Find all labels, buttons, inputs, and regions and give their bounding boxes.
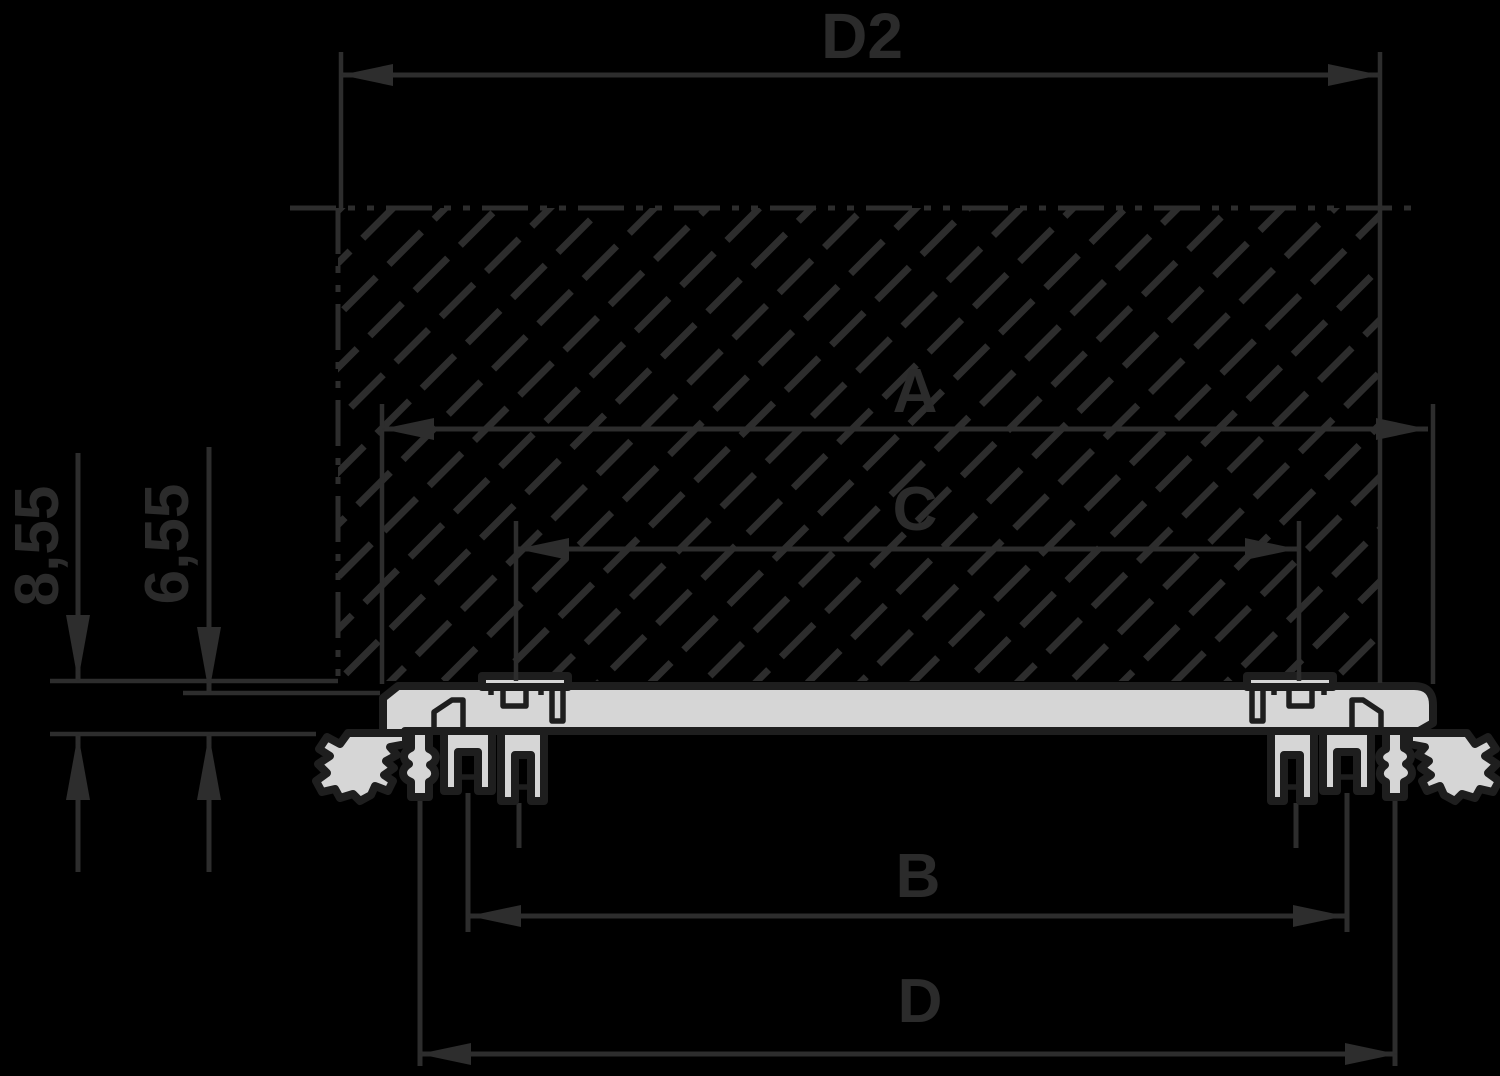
technical-drawing-canvas: D2ACBD 8,556,55 (0, 0, 1500, 1076)
arrowhead-down (66, 615, 90, 681)
dimension-drawing-svg: D2ACBD 8,556,55 (0, 0, 1500, 1076)
gasket-bump (403, 731, 436, 797)
dimension-label: 8,55 (3, 486, 72, 607)
arrowhead-right (1293, 905, 1345, 927)
dimension-B: B (469, 842, 1345, 927)
arrowhead-right (1345, 1043, 1397, 1065)
arrowhead-left (469, 905, 521, 927)
emc-gasket-comb (316, 733, 406, 801)
dimension-6,55: 6,55 (133, 447, 221, 872)
screw-boss (482, 676, 568, 687)
dimension-label: A (893, 357, 938, 426)
arrowhead-right (1376, 418, 1428, 440)
arrowhead-left (341, 64, 393, 86)
arrowhead-up (197, 734, 221, 800)
arrowhead-right (1328, 64, 1380, 86)
dimension-D: D (419, 967, 1397, 1065)
hatched-board-area (338, 208, 1380, 681)
hatch-fill (338, 208, 1380, 681)
vertical-dimensions: 8,556,55 (3, 447, 221, 872)
dimension-label: C (893, 475, 938, 544)
dimension-label: D2 (821, 0, 903, 72)
dimension-8,55: 8,55 (3, 453, 90, 872)
dimension-label: 6,55 (133, 484, 202, 605)
reference-lines (50, 681, 380, 734)
mounting-channel-b (444, 731, 492, 791)
dimension-label: D (898, 967, 943, 1036)
arrowhead-up (66, 734, 90, 800)
profile-cross-section (316, 676, 1499, 801)
dimension-label: B (896, 842, 941, 911)
mounting-channel-c (501, 731, 544, 801)
arrowhead-left (419, 1043, 471, 1065)
